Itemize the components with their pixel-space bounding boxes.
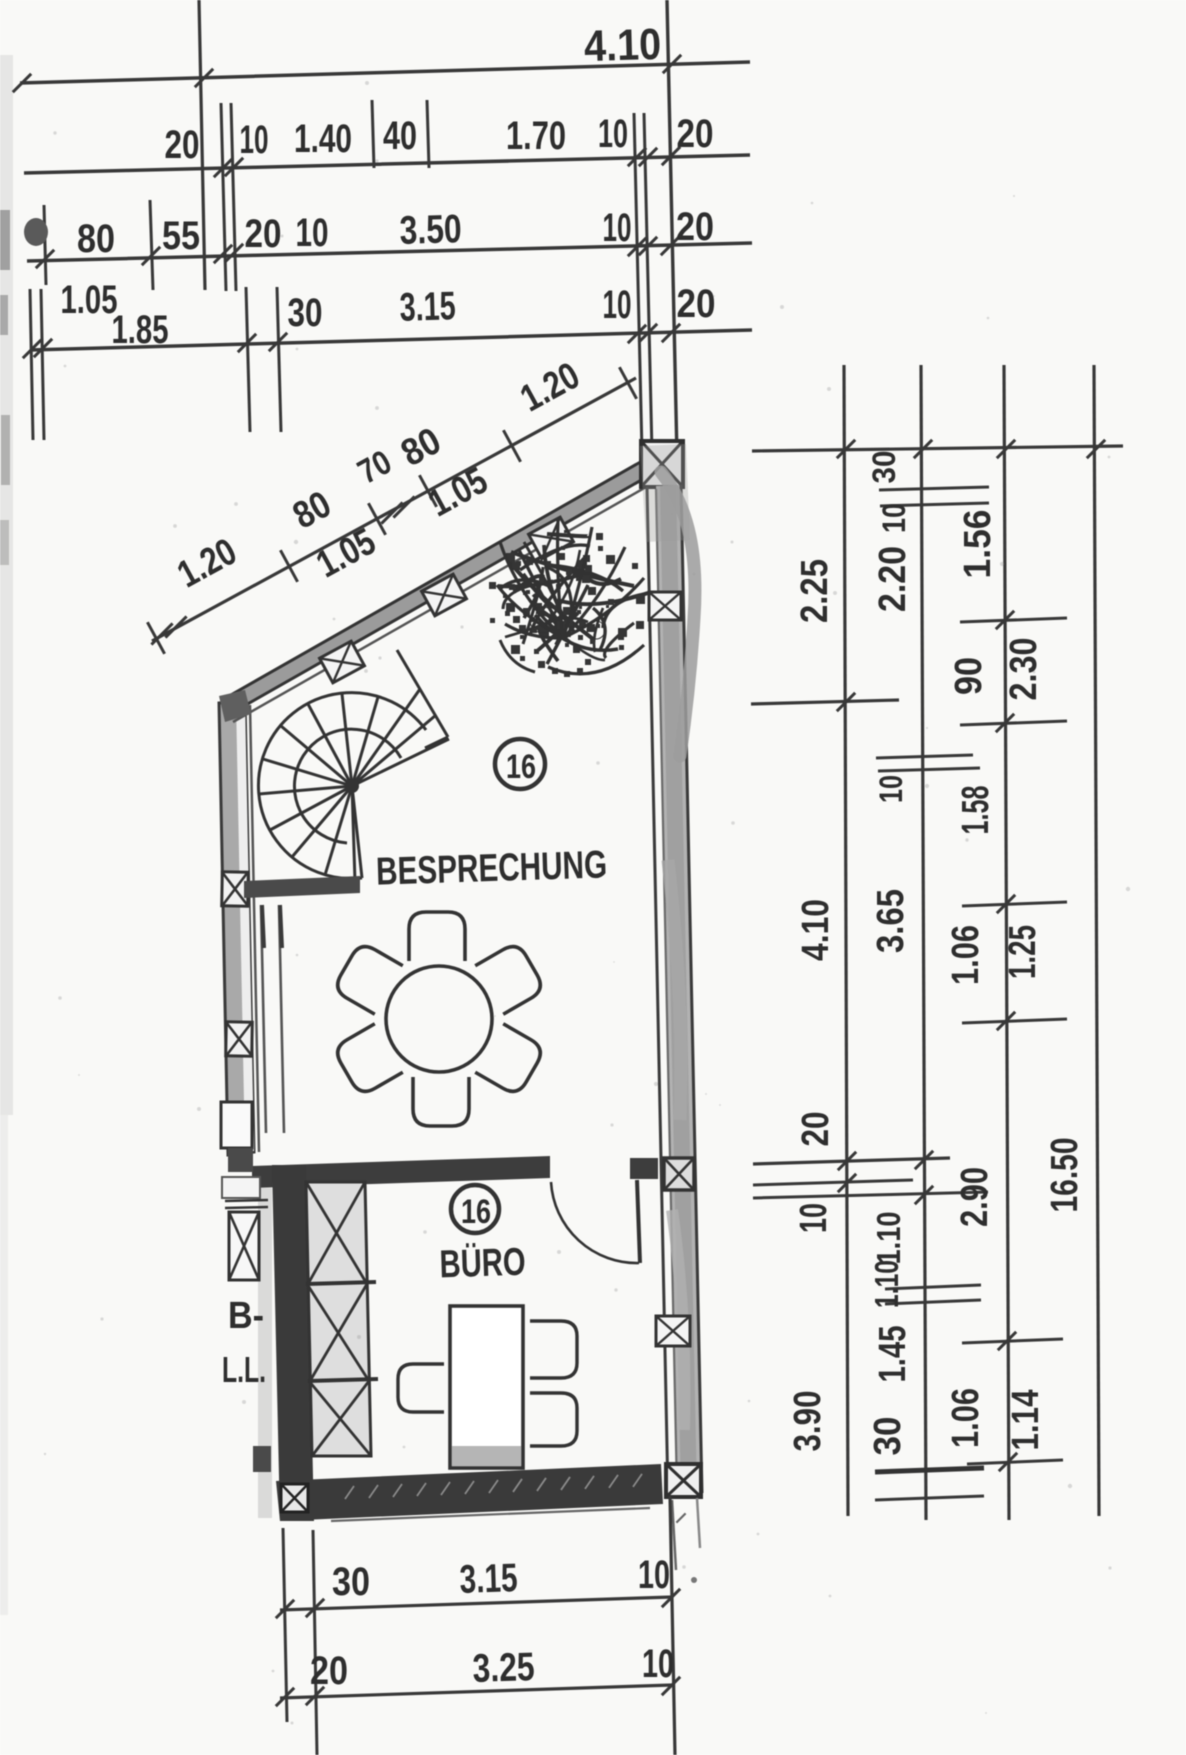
- svg-text:55: 55: [162, 214, 200, 258]
- svg-text:B-: B-: [228, 1295, 264, 1337]
- svg-text:1.45: 1.45: [872, 1326, 914, 1383]
- svg-text:BESPRECHUNG: BESPRECHUNG: [375, 843, 607, 893]
- svg-text:3.15: 3.15: [399, 284, 456, 330]
- svg-text:40: 40: [383, 114, 417, 158]
- svg-text:16: 16: [506, 748, 536, 786]
- svg-text:2.25: 2.25: [794, 559, 836, 623]
- svg-text:1.25: 1.25: [1002, 925, 1044, 979]
- svg-text:30: 30: [288, 291, 323, 335]
- svg-text:1.06: 1.06: [945, 925, 987, 985]
- svg-text:1.06: 1.06: [945, 1388, 987, 1448]
- svg-text:3.15: 3.15: [459, 1556, 518, 1602]
- svg-text:10: 10: [876, 503, 912, 533]
- svg-text:BÜRO: BÜRO: [439, 1241, 526, 1287]
- svg-text:1.10: 1.10: [870, 1212, 907, 1265]
- svg-text:1.10: 1.10: [868, 1260, 905, 1308]
- svg-text:2.30: 2.30: [1003, 638, 1045, 701]
- svg-text:2.20: 2.20: [872, 546, 914, 612]
- svg-text:20: 20: [165, 123, 200, 167]
- svg-text:1.58: 1.58: [955, 786, 997, 835]
- svg-text:20: 20: [677, 112, 714, 156]
- svg-text:4.10: 4.10: [583, 20, 661, 71]
- svg-text:30: 30: [867, 1417, 909, 1456]
- svg-text:16.50: 16.50: [1044, 1138, 1086, 1213]
- svg-text:10: 10: [638, 1553, 670, 1597]
- svg-text:L.L.: L.L.: [222, 1349, 266, 1390]
- svg-text:3.25: 3.25: [472, 1645, 535, 1691]
- svg-text:1.40: 1.40: [294, 117, 352, 161]
- svg-text:20: 20: [676, 205, 714, 249]
- svg-text:20: 20: [245, 212, 282, 256]
- svg-text:1.56: 1.56: [957, 510, 999, 579]
- svg-text:80: 80: [77, 217, 115, 261]
- svg-text:20: 20: [310, 1649, 348, 1693]
- svg-text:1.70: 1.70: [506, 114, 566, 158]
- svg-text:90: 90: [948, 657, 990, 695]
- svg-text:10: 10: [296, 211, 329, 255]
- svg-text:3.90: 3.90: [787, 1391, 829, 1452]
- svg-text:10: 10: [793, 1203, 835, 1233]
- svg-text:10: 10: [240, 118, 269, 162]
- svg-text:3.65: 3.65: [870, 889, 912, 953]
- svg-text:4.10: 4.10: [795, 899, 837, 961]
- svg-text:30: 30: [332, 1560, 370, 1604]
- svg-text:20: 20: [677, 282, 716, 326]
- svg-text:10: 10: [642, 1642, 674, 1686]
- svg-text:10: 10: [873, 775, 909, 803]
- svg-text:30: 30: [866, 451, 902, 484]
- svg-text:1.85: 1.85: [112, 308, 169, 352]
- svg-text:10: 10: [603, 206, 632, 250]
- svg-text:1.14: 1.14: [1005, 1390, 1047, 1451]
- svg-text:20: 20: [795, 1112, 837, 1147]
- svg-text:3.50: 3.50: [399, 207, 462, 253]
- svg-text:16: 16: [461, 1193, 491, 1231]
- svg-text:10: 10: [603, 283, 632, 327]
- svg-text:1.05: 1.05: [61, 278, 118, 322]
- svg-text:2.90: 2.90: [954, 1167, 996, 1227]
- svg-text:10: 10: [598, 112, 628, 156]
